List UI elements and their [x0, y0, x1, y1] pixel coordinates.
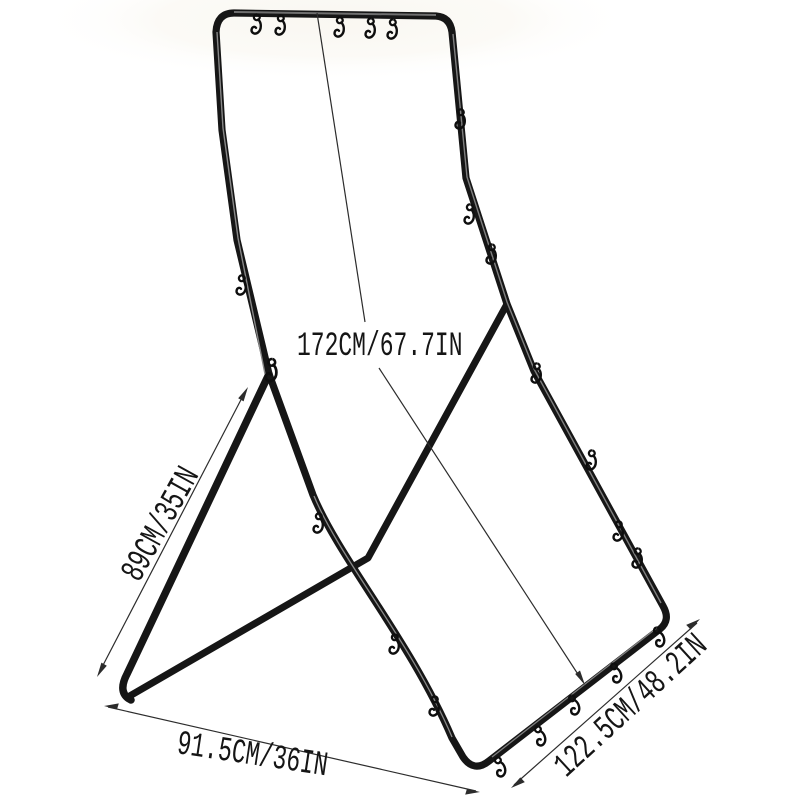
svg-text:172CM/67.7IN: 172CM/67.7IN: [297, 327, 463, 366]
